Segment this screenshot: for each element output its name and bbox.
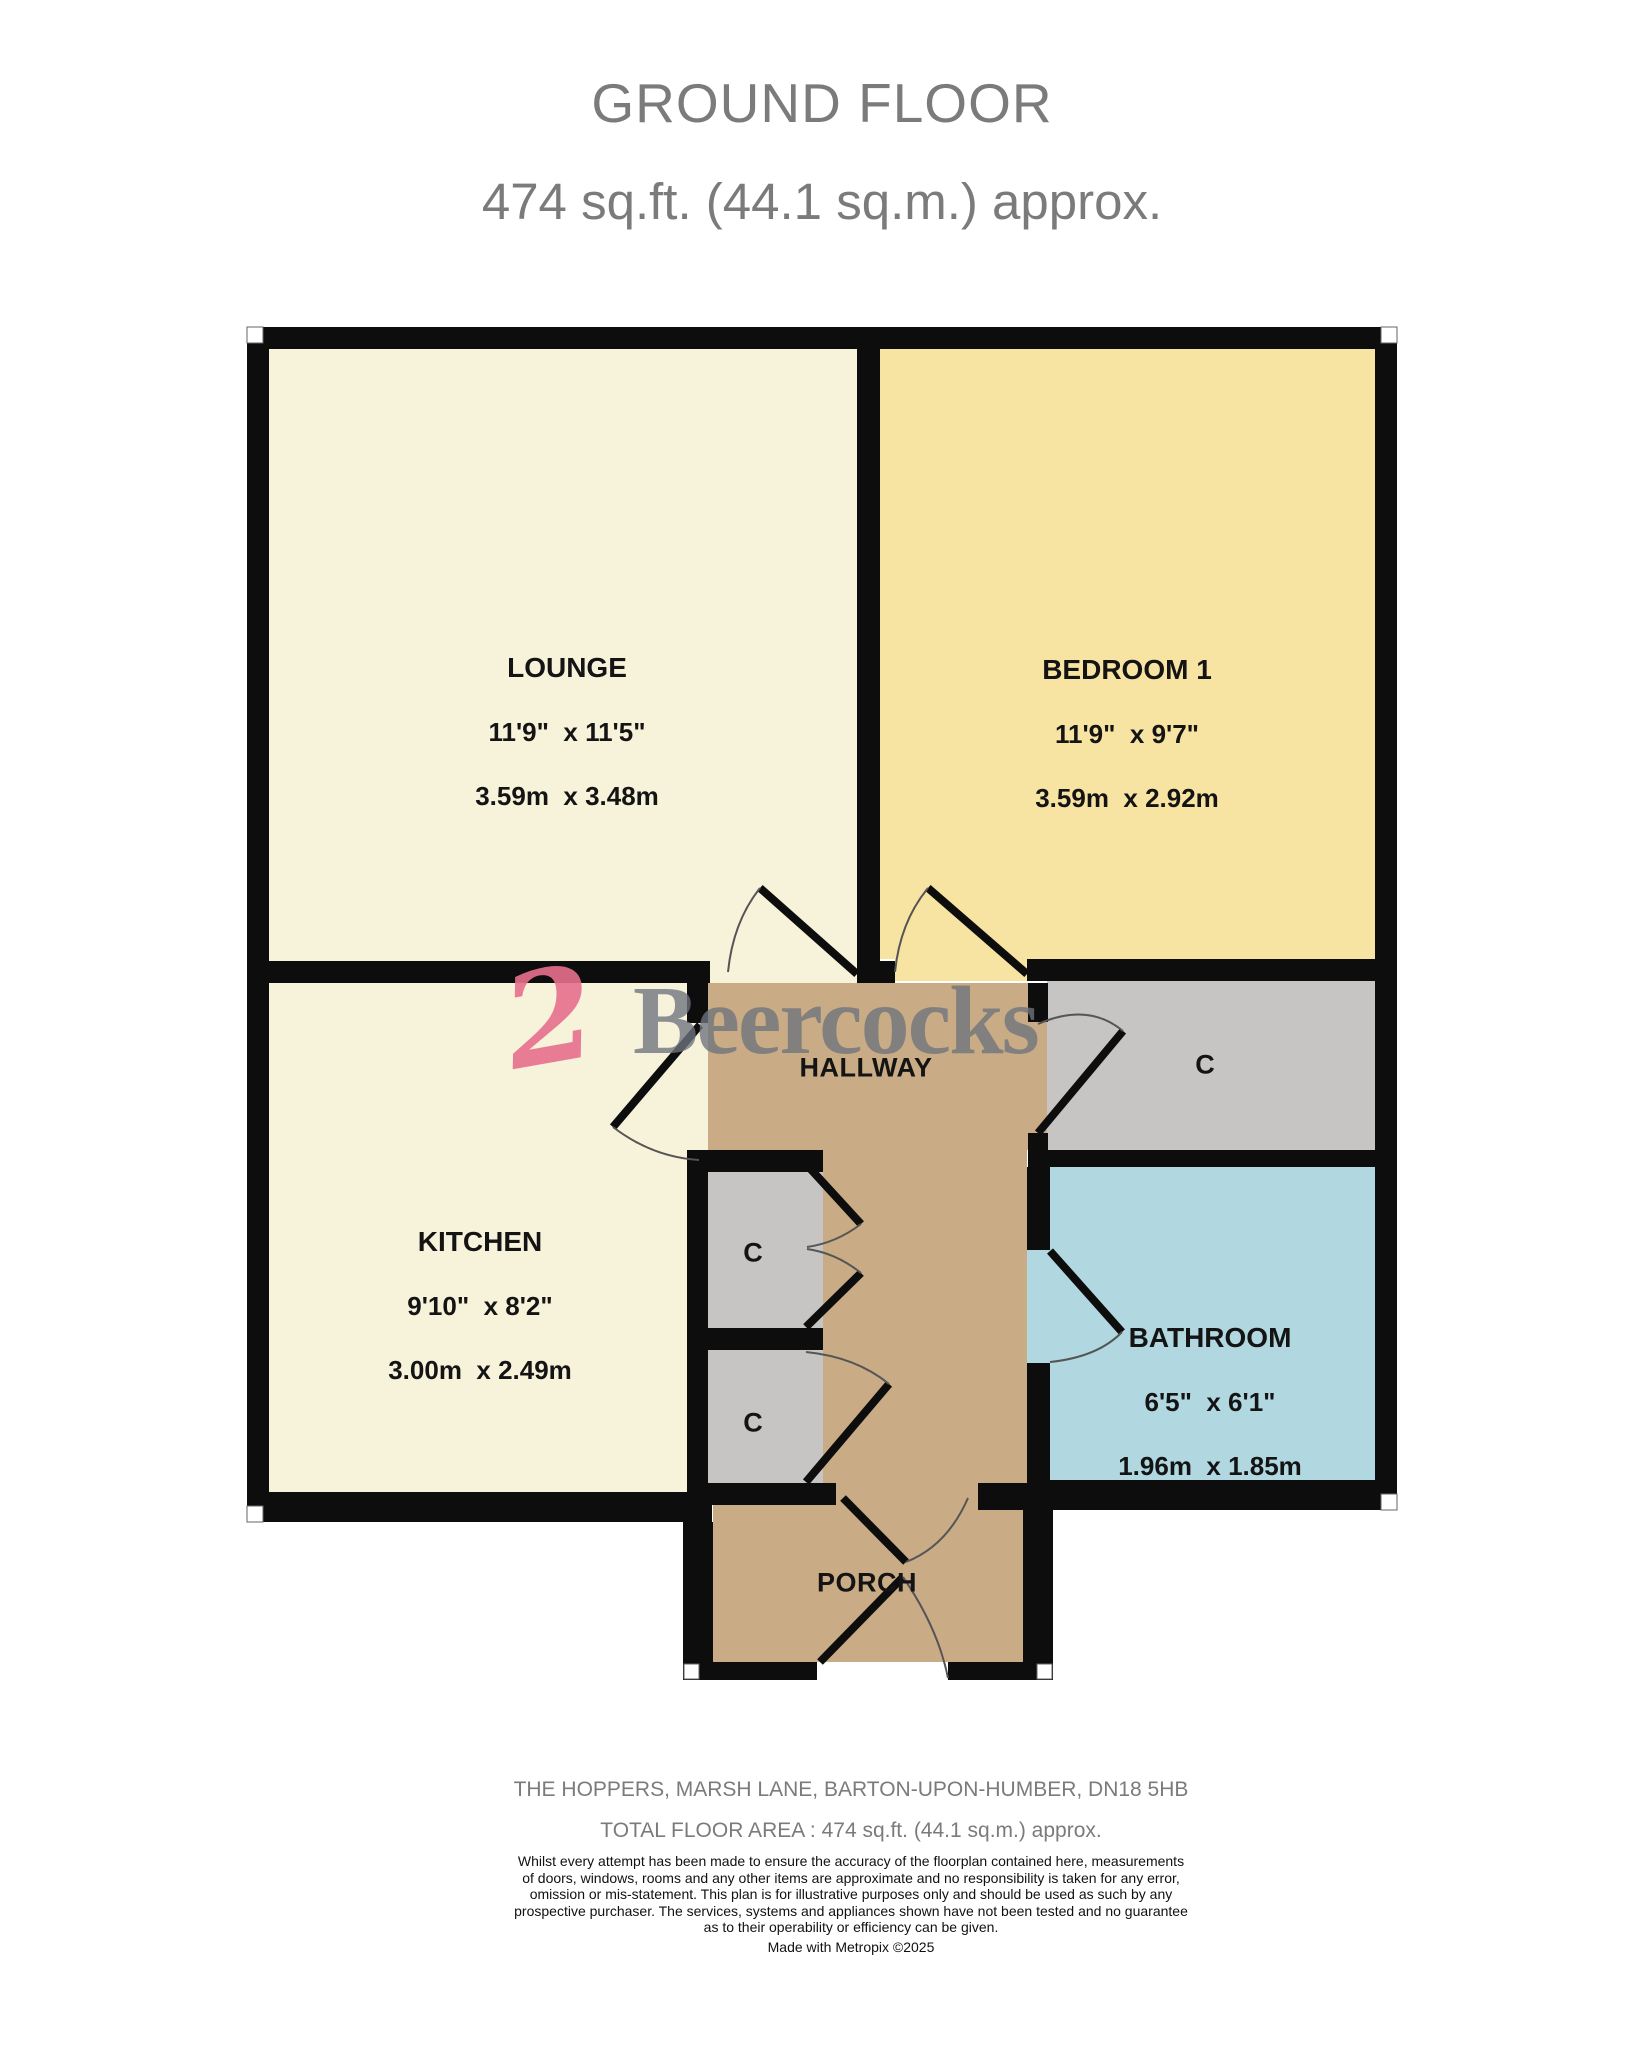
wall-stub-between-doors [857, 961, 895, 983]
room-label-bedroom1: BEDROOM 1 11'9" x 9'7" 3.59m x 2.92m [1035, 620, 1219, 848]
bedroom-doorway-floor [895, 959, 1027, 981]
wall-lounge-bottom [269, 961, 710, 983]
bedroom1-name: BEDROOM 1 [1035, 656, 1219, 684]
room-label-lounge: LOUNGE 11'9" x 11'5" 3.59m x 3.48m [475, 618, 659, 846]
wall-outer-left [247, 349, 269, 1522]
property-address: THE HOPPERS, MARSH LANE, BARTON-UPON-HUM… [401, 1778, 1301, 1802]
lounge-dims-imperial: 11'9" x 11'5" [475, 718, 659, 746]
footer: THE HOPPERS, MARSH LANE, BARTON-UPON-HUM… [401, 1778, 1301, 1955]
wall-kitchen-right-lower [687, 1150, 708, 1492]
metropix-credit: Made with Metropix ©2025 [401, 1939, 1301, 1956]
wall-bathroom-left-upper [1027, 1167, 1050, 1250]
corner-marker-top-right [1381, 327, 1397, 343]
lounge-name: LOUNGE [475, 654, 659, 682]
wall-bathroom-left-lower [1027, 1363, 1050, 1480]
bathroom-doorway-floor [1027, 1250, 1050, 1363]
closet-lower-floor [708, 1350, 823, 1483]
wall-lounge-bedroom-divider [857, 349, 880, 961]
disclaimer-line: prospective purchaser. The services, sys… [401, 1903, 1301, 1920]
lounge-dims-metric: 3.59m x 3.48m [475, 782, 659, 810]
wall-kitchen-right-stub [687, 983, 708, 1023]
disclaimer-line: as to their operability or efficiency ca… [401, 1919, 1301, 1936]
bedroom1-dims-imperial: 11'9" x 9'7" [1035, 720, 1219, 748]
lounge-doorway-floor [710, 961, 857, 983]
closet-upper-floor [708, 1172, 823, 1328]
room-label-bathroom: BATHROOM 6'5" x 6'1" 1.96m x 1.85m [1118, 1288, 1302, 1516]
room-label-kitchen: KITCHEN 9'10" x 8'2" 3.00m x 2.49m [388, 1192, 572, 1420]
room-label-porch: PORCH [817, 1568, 917, 1599]
wall-hall-porch-stub [978, 1483, 1027, 1510]
wall-bedroom-bottom [1027, 959, 1375, 981]
wall-closet-upper-top [687, 1150, 823, 1172]
disclaimer-line: omission or mis-statement. This plan is … [401, 1886, 1301, 1903]
corner-marker-bottom-left [247, 1506, 263, 1522]
bathroom-dims-imperial: 6'5" x 6'1" [1118, 1388, 1302, 1416]
corner-marker-porch-right [1037, 1664, 1052, 1679]
total-floor-area: TOTAL FLOOR AREA : 474 sq.ft. (44.1 sq.m… [401, 1819, 1301, 1843]
floorplan-page: GROUND FLOOR 474 sq.ft. (44.1 sq.m.) app… [0, 0, 1642, 2048]
wall-outer-top [247, 327, 1397, 349]
kitchen-name: KITCHEN [388, 1228, 572, 1256]
wall-porch-left [683, 1522, 713, 1680]
wall-porch-bottom-left [683, 1662, 817, 1680]
wall-closet-divider [687, 1328, 823, 1350]
closet-upper-label: C [743, 1238, 763, 1269]
wall-kitchen-bottom [247, 1492, 712, 1522]
closet-lower-label: C [743, 1408, 763, 1439]
kitchen-dims-imperial: 9'10" x 8'2" [388, 1292, 572, 1320]
bathroom-name: BATHROOM [1118, 1324, 1302, 1352]
wall-outer-right [1375, 349, 1397, 1510]
disclaimer-line: of doors, windows, rooms and any other i… [401, 1870, 1301, 1887]
corner-marker-top-left [247, 327, 263, 343]
wall-porch-right [1023, 1510, 1053, 1680]
corner-marker-porch-left [684, 1664, 699, 1679]
room-label-hallway: HALLWAY [799, 1053, 932, 1084]
wall-closet-right-top-stub [1028, 983, 1048, 1022]
wall-closet-right-bottom [1028, 1150, 1375, 1167]
floorplan-drawing [0, 0, 1642, 2048]
bathroom-dims-metric: 1.96m x 1.85m [1118, 1452, 1302, 1480]
closet-right-label: C [1195, 1050, 1215, 1081]
bedroom1-dims-metric: 3.59m x 2.92m [1035, 784, 1219, 812]
disclaimer-line: Whilst every attempt has been made to en… [401, 1853, 1301, 1870]
kitchen-dims-metric: 3.00m x 2.49m [388, 1356, 572, 1384]
corner-marker-bottom-right [1381, 1494, 1397, 1510]
